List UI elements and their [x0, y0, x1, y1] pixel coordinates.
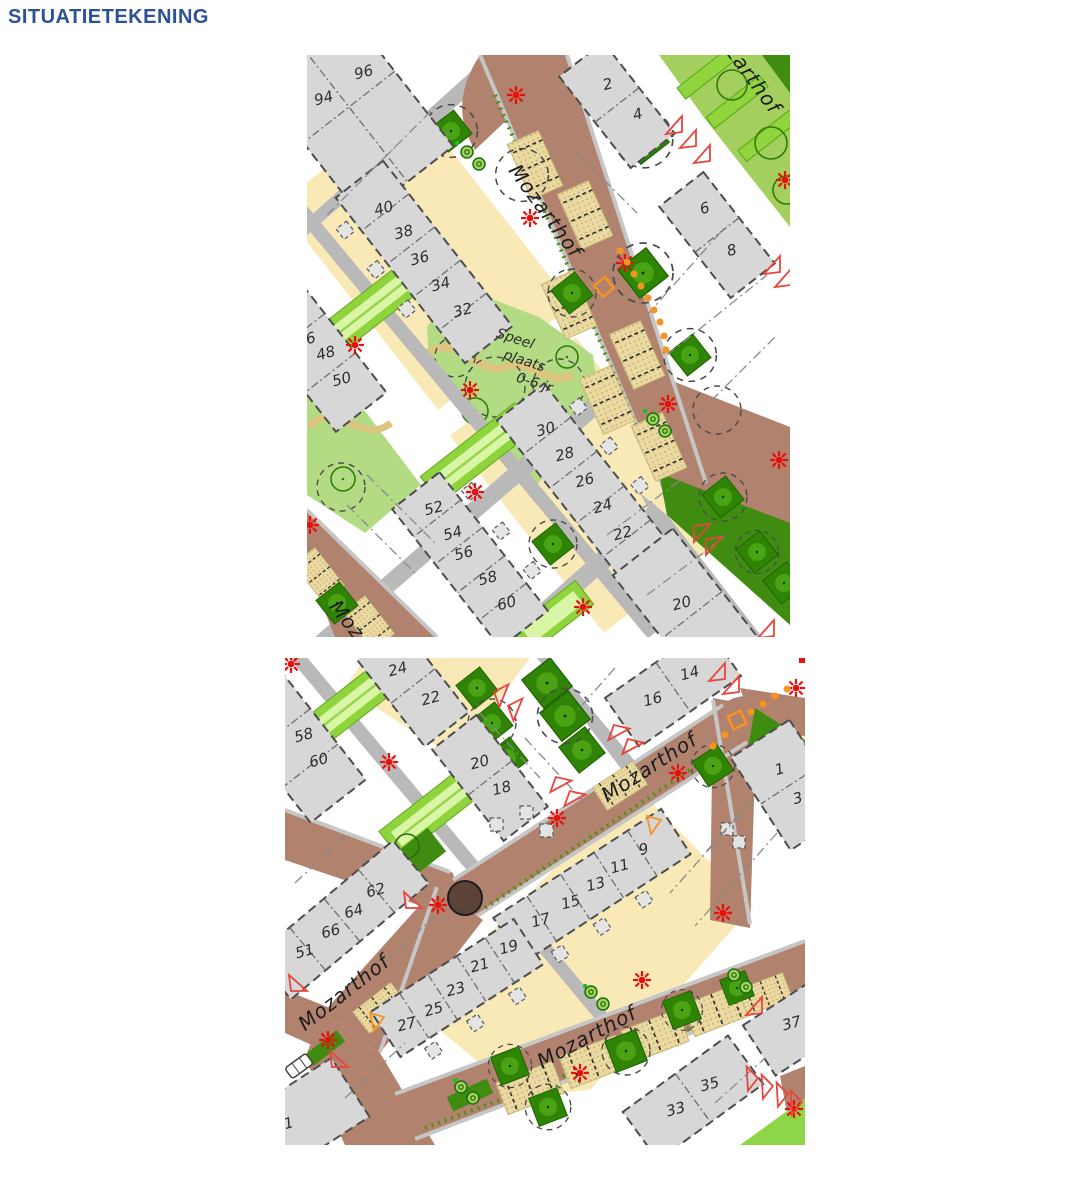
- street-lamp-icon: [571, 1064, 589, 1082]
- site-plan-south: 2422586020181416139111315171921232527626…: [285, 658, 805, 1145]
- street-lamp-icon: [346, 336, 364, 354]
- street-lamp-icon: [319, 1031, 337, 1049]
- street-lamp-icon: [548, 809, 566, 827]
- bicycle-stand-icon: [740, 981, 752, 993]
- page-title: SITUATIETEKENING: [8, 6, 209, 29]
- site-plan-south-svg: 2422586020181416139111315171921232527626…: [285, 658, 805, 1145]
- street-lamp-icon: [714, 904, 732, 922]
- bicycle-stand-icon: [467, 1092, 479, 1104]
- bicycle-stand-icon: [659, 425, 671, 437]
- bicycle-stand-icon: [473, 158, 485, 170]
- street-lamp-icon: [380, 753, 398, 771]
- bicycle-stand-icon: [585, 986, 597, 998]
- street-lamp-icon: [507, 86, 525, 104]
- site-plan-north-svg: 9694403836343264850302826242252545658602…: [307, 55, 790, 637]
- street-lamp-icon: [466, 483, 484, 501]
- bicycle-stand-icon: [728, 969, 740, 981]
- bicycle-stand-icon: [647, 413, 659, 425]
- street-lamp-icon: [633, 971, 651, 989]
- street-lamp-icon: [659, 395, 677, 413]
- document-page: SITUATIETEKENING: [0, 0, 1081, 1182]
- street-lamp-icon: [574, 598, 592, 616]
- bicycle-stand-icon: [455, 1081, 467, 1093]
- bicycle-stand-icon: [461, 146, 473, 158]
- bicycle-stand-icon: [597, 998, 609, 1010]
- turning-circle-tree: [448, 881, 482, 915]
- street-lamp-icon: [461, 381, 479, 399]
- street-lamp-icon: [429, 896, 447, 914]
- site-plan-north: 9694403836343264850302826242252545658602…: [307, 55, 790, 637]
- street-lamp-icon: [770, 451, 788, 469]
